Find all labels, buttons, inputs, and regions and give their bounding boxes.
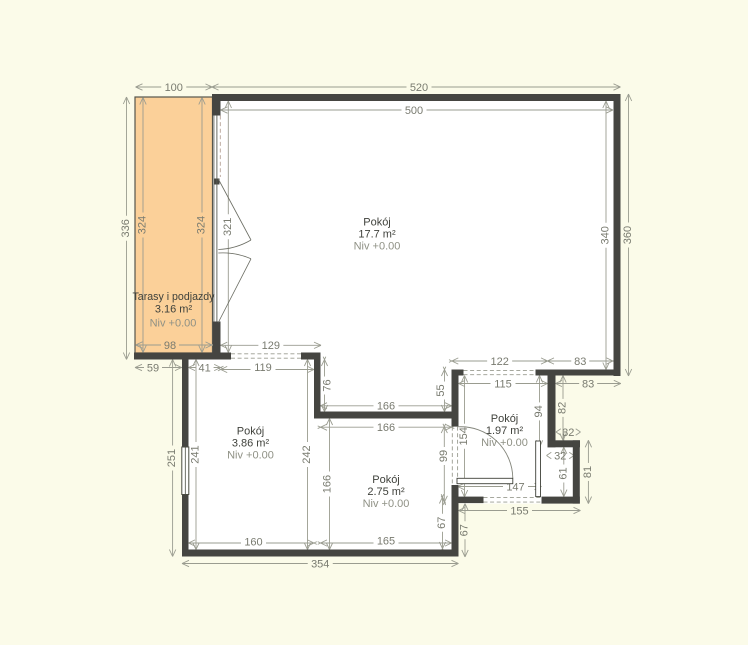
svg-text:241: 241 — [190, 445, 202, 463]
svg-text:160: 160 — [244, 536, 262, 548]
svg-text:Pokój: Pokój — [491, 413, 519, 425]
svg-text:32: 32 — [554, 450, 566, 462]
svg-text:166: 166 — [377, 422, 395, 434]
svg-text:83: 83 — [574, 356, 586, 368]
svg-text:Pokój: Pokój — [363, 217, 391, 229]
svg-text:Niv +0.00: Niv +0.00 — [354, 241, 401, 253]
svg-text:340: 340 — [600, 226, 612, 244]
svg-text:61: 61 — [557, 467, 569, 479]
svg-text:Pokój: Pokój — [372, 474, 400, 486]
svg-text:55: 55 — [435, 384, 447, 396]
svg-text:251: 251 — [166, 449, 178, 467]
svg-text:324: 324 — [196, 216, 208, 234]
svg-text:Tarasy i podjazdy: Tarasy i podjazdy — [133, 291, 215, 303]
svg-text:41: 41 — [198, 362, 210, 374]
svg-text:67: 67 — [459, 524, 471, 536]
svg-text:154: 154 — [458, 427, 470, 445]
svg-text:500: 500 — [405, 105, 423, 117]
svg-text:166: 166 — [377, 401, 395, 413]
svg-text:129: 129 — [262, 340, 280, 352]
svg-text:76: 76 — [322, 379, 334, 391]
svg-text:354: 354 — [311, 558, 329, 570]
svg-text:3.86 m²: 3.86 m² — [232, 438, 270, 450]
svg-text:155: 155 — [510, 505, 528, 517]
svg-text:94: 94 — [533, 405, 545, 417]
svg-text:81: 81 — [582, 466, 594, 478]
svg-text:Niv +0.00: Niv +0.00 — [481, 437, 528, 449]
svg-text:119: 119 — [254, 362, 272, 374]
svg-text:32: 32 — [562, 427, 574, 439]
svg-text:59: 59 — [147, 362, 159, 374]
svg-text:83: 83 — [582, 378, 594, 390]
svg-text:3.16 m²: 3.16 m² — [155, 304, 193, 316]
svg-text:324: 324 — [137, 216, 149, 234]
svg-text:Niv +0.00: Niv +0.00 — [363, 498, 410, 510]
svg-text:2.75 m²: 2.75 m² — [367, 486, 405, 498]
svg-text:1.97 m²: 1.97 m² — [486, 425, 524, 437]
svg-text:82: 82 — [557, 402, 569, 414]
svg-text:Niv +0.00: Niv +0.00 — [150, 318, 197, 330]
svg-text:100: 100 — [165, 82, 183, 94]
svg-text:Niv +0.00: Niv +0.00 — [227, 450, 274, 462]
svg-text:17.7 m²: 17.7 m² — [358, 229, 396, 241]
svg-text:321: 321 — [222, 218, 234, 236]
svg-text:115: 115 — [494, 378, 512, 390]
svg-text:98: 98 — [164, 340, 176, 352]
svg-text:122: 122 — [490, 356, 508, 368]
svg-text:Pokój: Pokój — [237, 426, 265, 438]
svg-text:360: 360 — [622, 226, 634, 244]
svg-text:166: 166 — [322, 475, 334, 493]
svg-text:242: 242 — [301, 445, 313, 463]
svg-text:67: 67 — [436, 517, 448, 529]
svg-text:336: 336 — [120, 219, 132, 237]
svg-text:165: 165 — [377, 535, 395, 547]
svg-text:520: 520 — [410, 82, 428, 94]
svg-text:99: 99 — [438, 450, 450, 462]
